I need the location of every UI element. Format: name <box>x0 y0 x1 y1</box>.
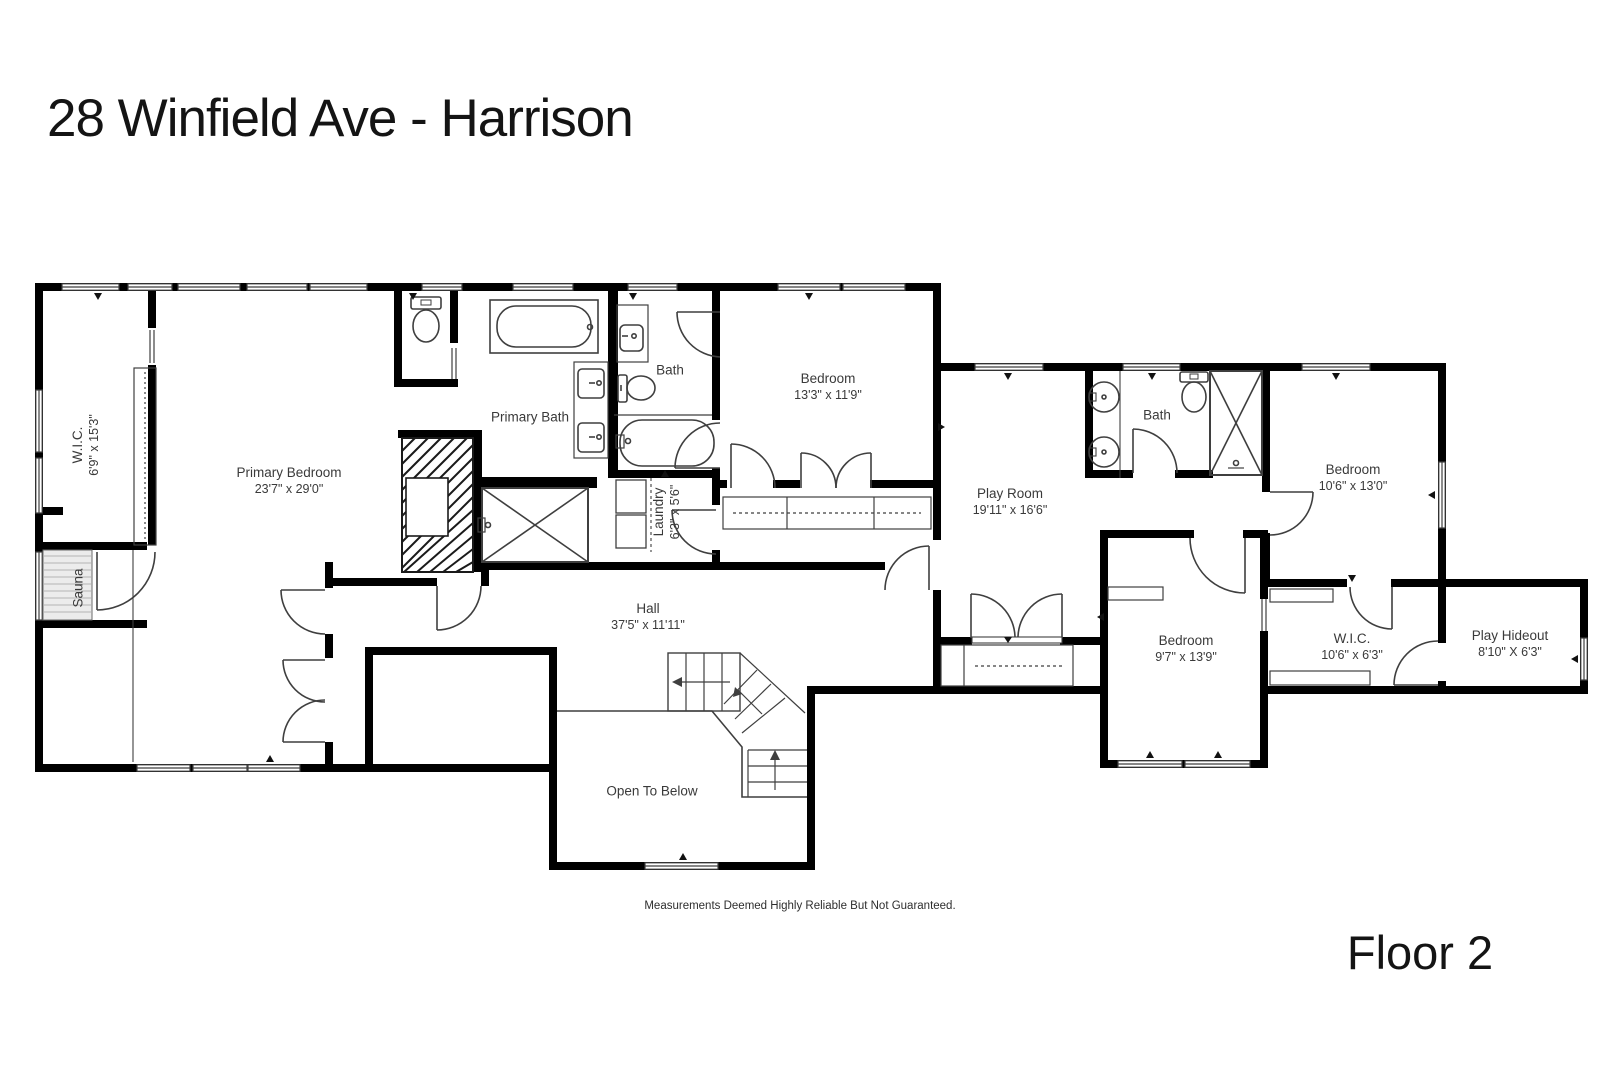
room-label-play-room: Play Room 19'11" x 16'6" <box>973 485 1048 519</box>
door-hall-east <box>885 546 929 590</box>
pocket-door-wic-left <box>150 330 154 363</box>
pocket-door-bedroom9 <box>1262 599 1266 631</box>
windows-bottom-left <box>137 765 300 771</box>
windows-left-wall <box>36 390 42 620</box>
room-label-open-to-below: Open To Below <box>606 783 697 800</box>
door-bedroom13 <box>731 444 775 488</box>
window-row-right-block <box>975 364 1370 370</box>
window-open-below <box>645 863 718 869</box>
doors <box>97 330 1438 742</box>
door-primary-bedroom-single <box>281 590 325 634</box>
door-hall-west <box>437 586 481 630</box>
room-label-bedroom-10: Bedroom 10'6" x 13'0" <box>1319 461 1388 495</box>
window-hideout-east <box>1581 638 1587 680</box>
chimney-hatch <box>402 438 473 572</box>
vanity-primary <box>574 362 608 458</box>
room-label-play-hideout: Play Hideout 8'10" X 6'3" <box>1472 627 1549 661</box>
door-play-hideout <box>1394 641 1438 685</box>
door-vestibule-double <box>971 594 1062 643</box>
room-label-bath-left: Bath <box>656 362 684 379</box>
door-bath-right <box>1133 429 1177 473</box>
floorplan-page: 28 Winfield Ave - Harrison W.I.C. 6'9" x… <box>0 0 1619 1080</box>
room-label-primary-bath: Primary Bath <box>491 409 569 426</box>
disclaimer-text: Measurements Deemed Highly Reliable But … <box>590 900 1010 912</box>
room-label-bedroom-9: Bedroom 9'7" x 13'9" <box>1155 632 1217 666</box>
vanity-bath-right <box>1089 371 1120 478</box>
toilet-bath-right <box>1180 372 1208 412</box>
closet-bedroom13 <box>723 497 931 529</box>
toilet-primary <box>411 297 441 342</box>
shower-primary <box>478 488 588 562</box>
door-bedroom13-closet-double <box>801 453 871 488</box>
room-label-primary-bedroom: Primary Bedroom 23'7" x 29'0" <box>236 464 341 498</box>
floorplan-drawing <box>0 0 1619 1080</box>
pocket-door-niche <box>452 348 456 379</box>
room-label-laundry: Laundry 6'3" x 5'6" <box>650 485 684 540</box>
door-wic-right <box>1350 587 1392 629</box>
shower-bath-right <box>1210 371 1262 475</box>
laundry-machines <box>616 478 651 552</box>
door-sauna <box>97 552 155 610</box>
toilet-bath-left <box>618 375 655 402</box>
stairs-diagonal-flight <box>724 653 805 733</box>
room-label-bath-right: Bath <box>1143 407 1171 424</box>
tub-bath-left <box>614 415 714 466</box>
door-bedroom10 <box>1270 492 1313 535</box>
sink-bath-left <box>617 305 648 362</box>
stairs <box>557 653 807 797</box>
page-title: 28 Winfield Ave - Harrison <box>47 88 633 149</box>
room-label-bedroom-13: Bedroom 13'3" x 11'9" <box>794 370 862 404</box>
stairs-lower-flight <box>748 750 807 797</box>
stairs-upper-flight <box>668 653 740 711</box>
room-label-wic-left: W.I.C. 6'9" x 15'3" <box>69 414 103 476</box>
window-bedroom10-east <box>1439 462 1445 528</box>
closet-vestibule <box>941 645 1073 686</box>
tub-primary <box>490 300 598 353</box>
room-label-sauna: Sauna <box>70 568 87 607</box>
door-primary-bedroom-double <box>283 660 325 742</box>
door-bedroom9 <box>1190 538 1245 593</box>
floor-label: Floor 2 <box>1280 925 1560 980</box>
shelf-bedroom9 <box>1108 587 1163 600</box>
room-label-hall: Hall 37'5" x 11'11" <box>611 600 685 634</box>
room-label-wic-right: W.I.C. 10'6" x 6'3" <box>1321 630 1383 664</box>
